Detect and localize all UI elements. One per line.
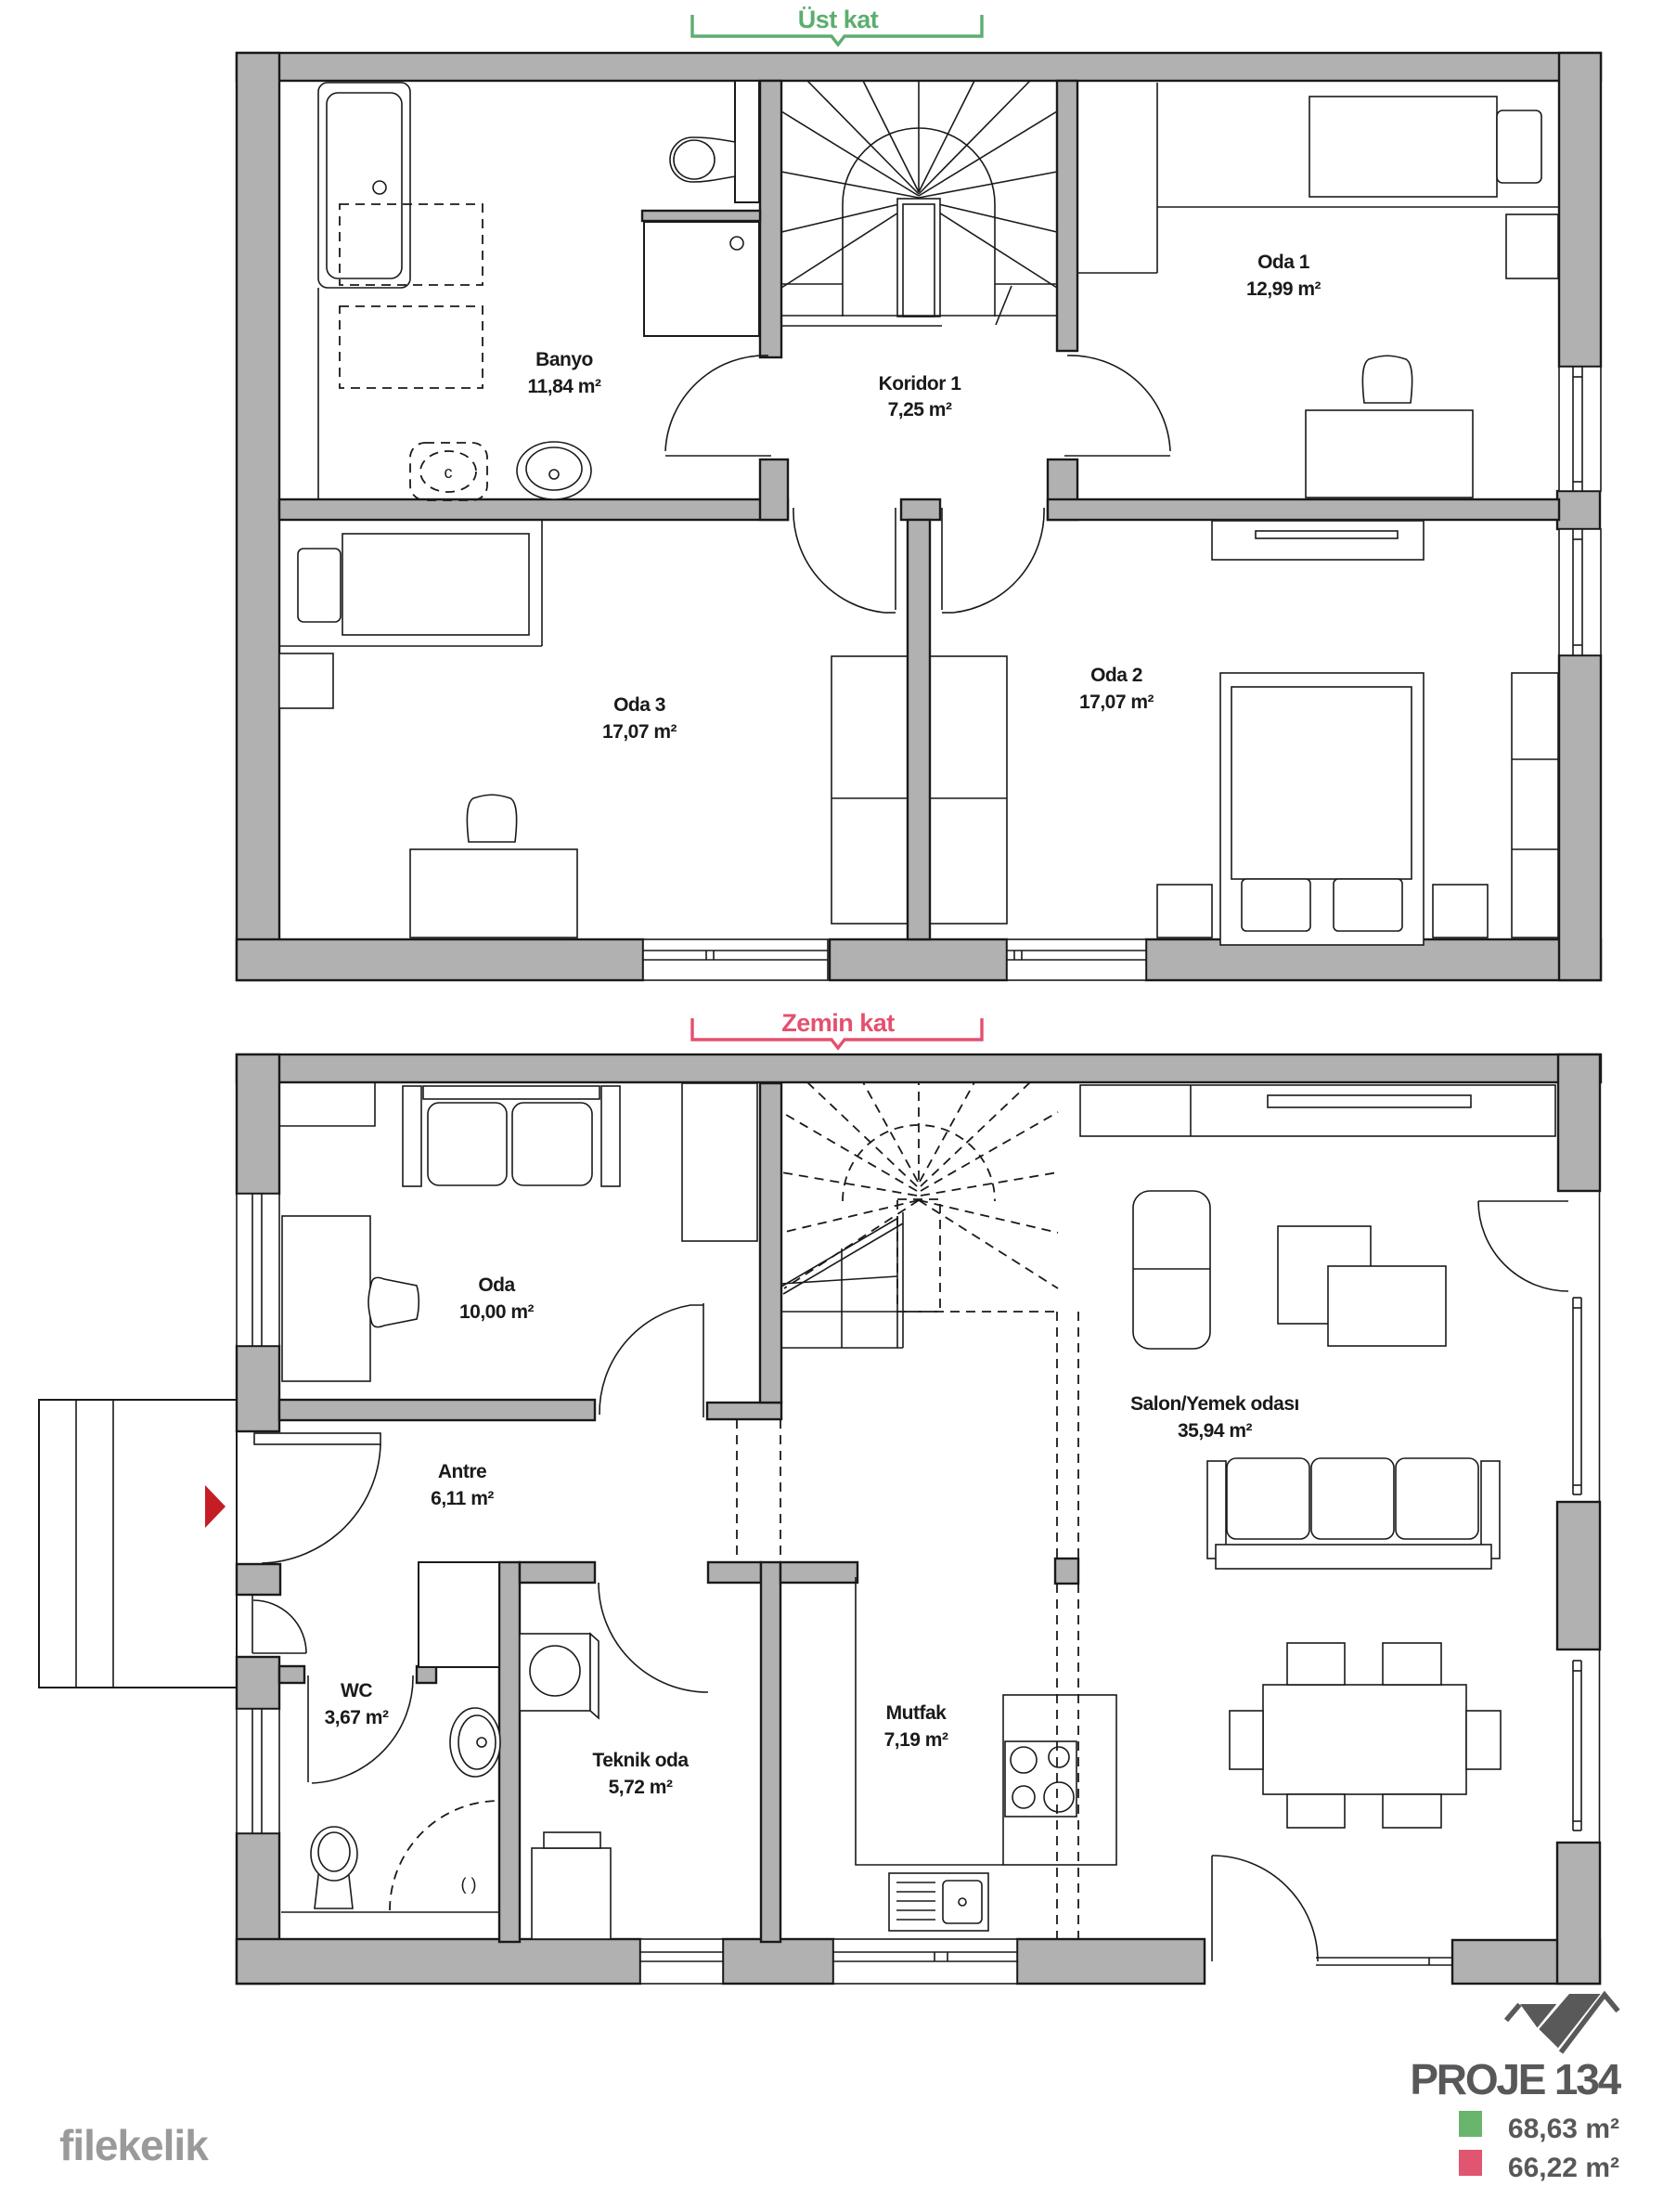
svg-text:Oda 1: Oda 1 [1257, 252, 1310, 273]
svg-text:( ): ( ) [461, 1875, 477, 1894]
svg-text:Oda 2: Oda 2 [1090, 665, 1142, 686]
svg-text:Teknik oda: Teknik oda [592, 1750, 689, 1771]
svg-text:filekelik: filekelik [59, 2121, 209, 2169]
svg-text:Koridor 1: Koridor 1 [879, 373, 962, 395]
svg-text:Antre: Antre [438, 1461, 486, 1482]
svg-text:WC: WC [341, 1680, 372, 1701]
svg-text:7,25 m²: 7,25 m² [888, 399, 952, 420]
svg-text:3,67 m²: 3,67 m² [325, 1707, 389, 1728]
svg-text:c: c [445, 463, 453, 482]
svg-text:Zemin kat: Zemin kat [781, 1009, 895, 1037]
svg-text:Mutfak: Mutfak [886, 1702, 947, 1724]
svg-text:35,94 m²: 35,94 m² [1178, 1420, 1253, 1442]
svg-text:Oda: Oda [478, 1274, 515, 1296]
svg-text:PROJE 134: PROJE 134 [1410, 2055, 1621, 2103]
svg-text:12,99 m²: 12,99 m² [1246, 278, 1321, 300]
svg-text:Banyo: Banyo [535, 349, 593, 370]
svg-text:Salon/Yemek odası: Salon/Yemek odası [1130, 1393, 1299, 1415]
svg-text:66,22 m²: 66,22 m² [1508, 2153, 1619, 2183]
svg-text:11,84 m²: 11,84 m² [528, 376, 601, 397]
svg-text:Oda 3: Oda 3 [613, 694, 665, 716]
svg-text:7,19 m²: 7,19 m² [884, 1729, 948, 1751]
svg-text:Üst kat: Üst kat [798, 6, 879, 33]
svg-text:17,07 m²: 17,07 m² [1079, 692, 1154, 713]
svg-text:5,72 m²: 5,72 m² [609, 1777, 673, 1798]
svg-text:68,63 m²: 68,63 m² [1508, 2114, 1619, 2144]
svg-text:17,07 m²: 17,07 m² [602, 721, 677, 743]
svg-text:6,11 m²: 6,11 m² [431, 1488, 494, 1509]
svg-text:10,00 m²: 10,00 m² [459, 1301, 535, 1323]
